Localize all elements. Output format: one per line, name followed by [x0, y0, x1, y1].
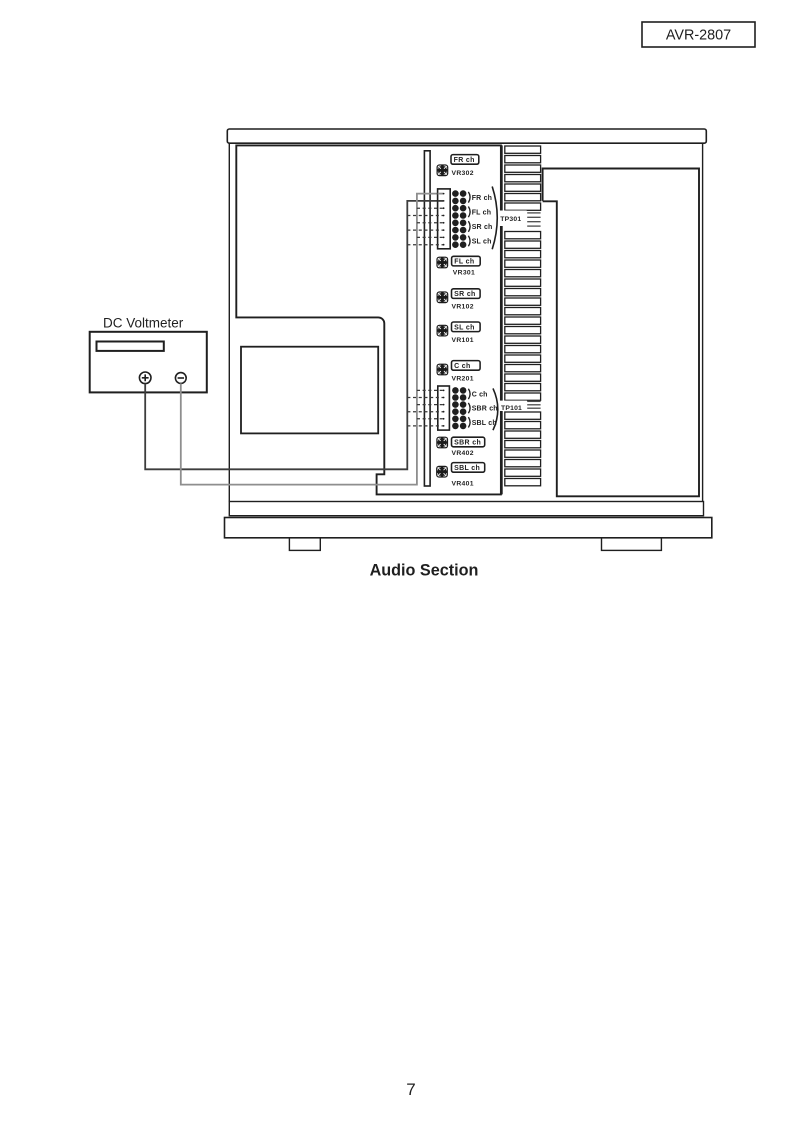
svg-text:Audio Section: Audio Section: [370, 561, 479, 579]
svg-text:DC Voltmeter: DC Voltmeter: [103, 316, 184, 331]
svg-text:VR302: VR302: [452, 170, 474, 177]
svg-text:TP101: TP101: [501, 405, 522, 412]
svg-text:SR ch: SR ch: [454, 291, 476, 298]
svg-text:VR301: VR301: [453, 270, 475, 277]
svg-text:TP301: TP301: [500, 216, 521, 223]
svg-text:C ch: C ch: [472, 391, 488, 398]
svg-text:SBR ch: SBR ch: [472, 406, 498, 413]
svg-text:AVR-2807: AVR-2807: [666, 28, 731, 44]
svg-text:7: 7: [406, 1080, 415, 1099]
svg-text:SBL ch: SBL ch: [472, 420, 497, 427]
svg-text:VR402: VR402: [452, 450, 474, 457]
svg-text:FR ch: FR ch: [472, 195, 492, 202]
svg-text:SR ch: SR ch: [472, 224, 493, 231]
svg-text:SBL ch: SBL ch: [454, 465, 480, 472]
svg-text:VR101: VR101: [452, 337, 474, 344]
svg-text:C ch: C ch: [454, 363, 471, 370]
svg-text:SL ch: SL ch: [454, 324, 475, 331]
svg-text:VR201: VR201: [452, 376, 474, 383]
svg-text:FL ch: FL ch: [454, 259, 474, 266]
svg-text:VR102: VR102: [452, 304, 474, 311]
svg-text:VR401: VR401: [452, 481, 474, 488]
svg-text:FR ch: FR ch: [454, 157, 475, 164]
svg-text:FL ch: FL ch: [472, 209, 492, 216]
svg-text:SBR ch: SBR ch: [454, 440, 481, 447]
svg-text:SL ch: SL ch: [472, 239, 492, 246]
